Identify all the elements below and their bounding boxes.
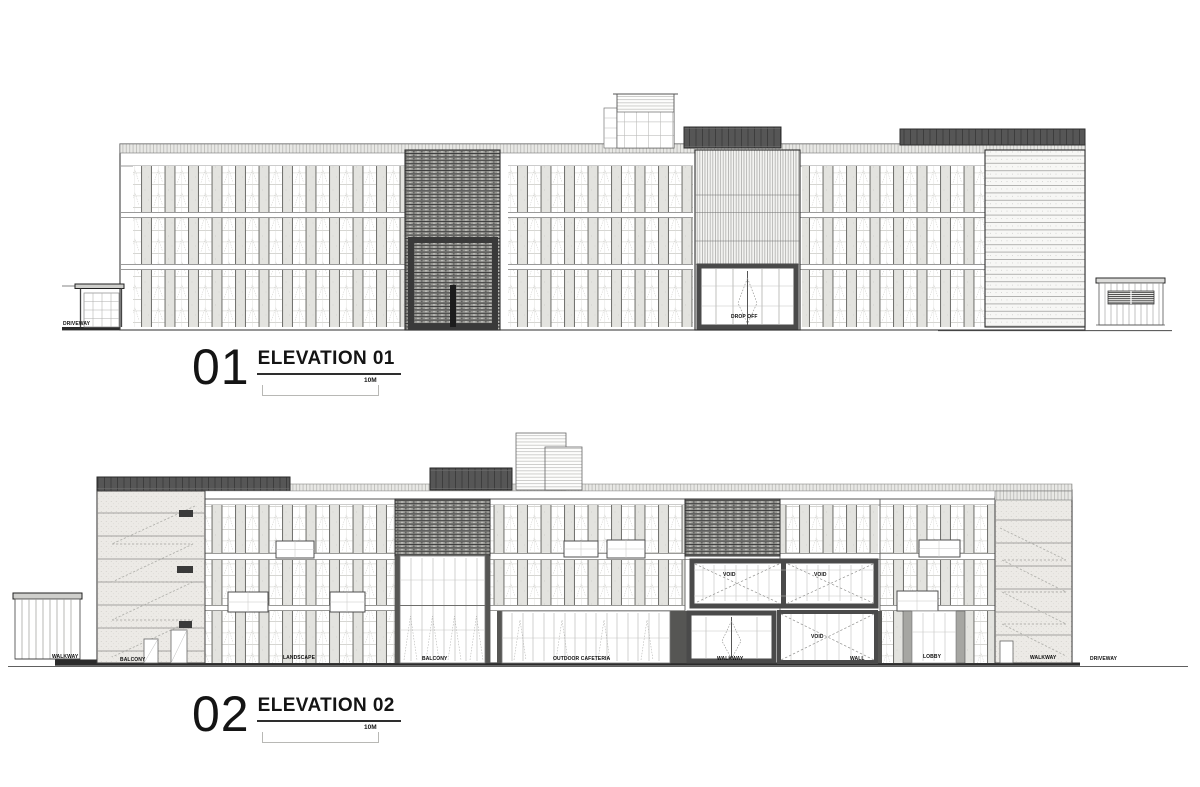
elevation-01-titleblock: 01 ELEVATION 01 10M [192, 347, 401, 401]
scale-bar [262, 385, 379, 396]
label-walkway: WALKWAY [52, 655, 78, 660]
label-walkway: WALKWAY [1030, 656, 1056, 661]
drawing-sheet: DRIVEWAY DROP OFF WALKWAY BALCONY LANDSC… [0, 0, 1200, 787]
elevations-canvas [0, 0, 1200, 787]
balcony-box [897, 591, 938, 611]
roof-equipment [430, 468, 512, 490]
walkway-entrance [689, 613, 774, 661]
facade-strips [133, 166, 985, 327]
label-drop-off: DROP OFF [731, 315, 758, 320]
label-void: VOID [723, 573, 736, 578]
label-balcony: BALCONY [120, 658, 145, 663]
label-walkway: WALKWAY [717, 657, 743, 662]
balcony-box [276, 541, 314, 558]
drawing-title: ELEVATION 01 [257, 347, 401, 375]
label-void: VOID [811, 635, 824, 640]
louver-end-block [985, 150, 1085, 327]
label-lobby: LOBBY [923, 655, 941, 660]
mesh-band-right [685, 499, 780, 556]
drawing-title: ELEVATION 02 [257, 694, 401, 722]
void-glazing-band [692, 561, 876, 606]
label-balcony: BALCONY [422, 657, 447, 662]
roof-penthouse [516, 433, 582, 490]
roof-penthouse [604, 94, 678, 148]
balcony-box [564, 541, 598, 557]
drawing-number: 01 [192, 347, 250, 387]
label-void: VOID [814, 573, 827, 578]
parking-wall-right [995, 491, 1072, 663]
titleblock-right: ELEVATION 01 10M [257, 347, 401, 401]
label-landscape: LANDSCAPE [283, 656, 315, 661]
main-building [120, 144, 1085, 330]
scale-block: 10M [257, 375, 387, 401]
balcony-box [919, 540, 960, 557]
label-driveway: DRIVEWAY [1090, 657, 1117, 662]
titleblock-right: ELEVATION 02 10M [257, 694, 401, 748]
void-glazing-ground [779, 611, 882, 663]
drop-off-tower [695, 150, 800, 330]
label-wall: WALL [850, 657, 865, 662]
balcony-box [330, 592, 365, 612]
scale-label: 10M [364, 724, 377, 731]
roof-equipment [684, 127, 781, 148]
scale-label: 10M [364, 377, 377, 384]
drawing-number: 02 [192, 694, 250, 734]
scale-bar [262, 732, 379, 743]
storefront-tall [395, 556, 490, 663]
elevation-01-drawing [62, 94, 1172, 331]
entrance-tower-mesh [405, 150, 500, 330]
mesh-band-left [395, 499, 490, 556]
label-outdoor-cafeteria: OUTDOOR CAFETERIA [553, 657, 610, 662]
label-driveway: DRIVEWAY [63, 322, 90, 327]
roof-dark-band [900, 129, 1085, 145]
elevation-02-drawing [8, 433, 1188, 666]
side-outbuilding [13, 593, 82, 659]
parking-wall-left [97, 491, 205, 663]
balcony-box [228, 592, 268, 612]
side-outbuilding [1096, 278, 1165, 325]
balcony-box [607, 540, 645, 558]
scale-block: 10M [257, 722, 387, 748]
elevation-02-titleblock: 02 ELEVATION 02 10M [192, 694, 401, 748]
